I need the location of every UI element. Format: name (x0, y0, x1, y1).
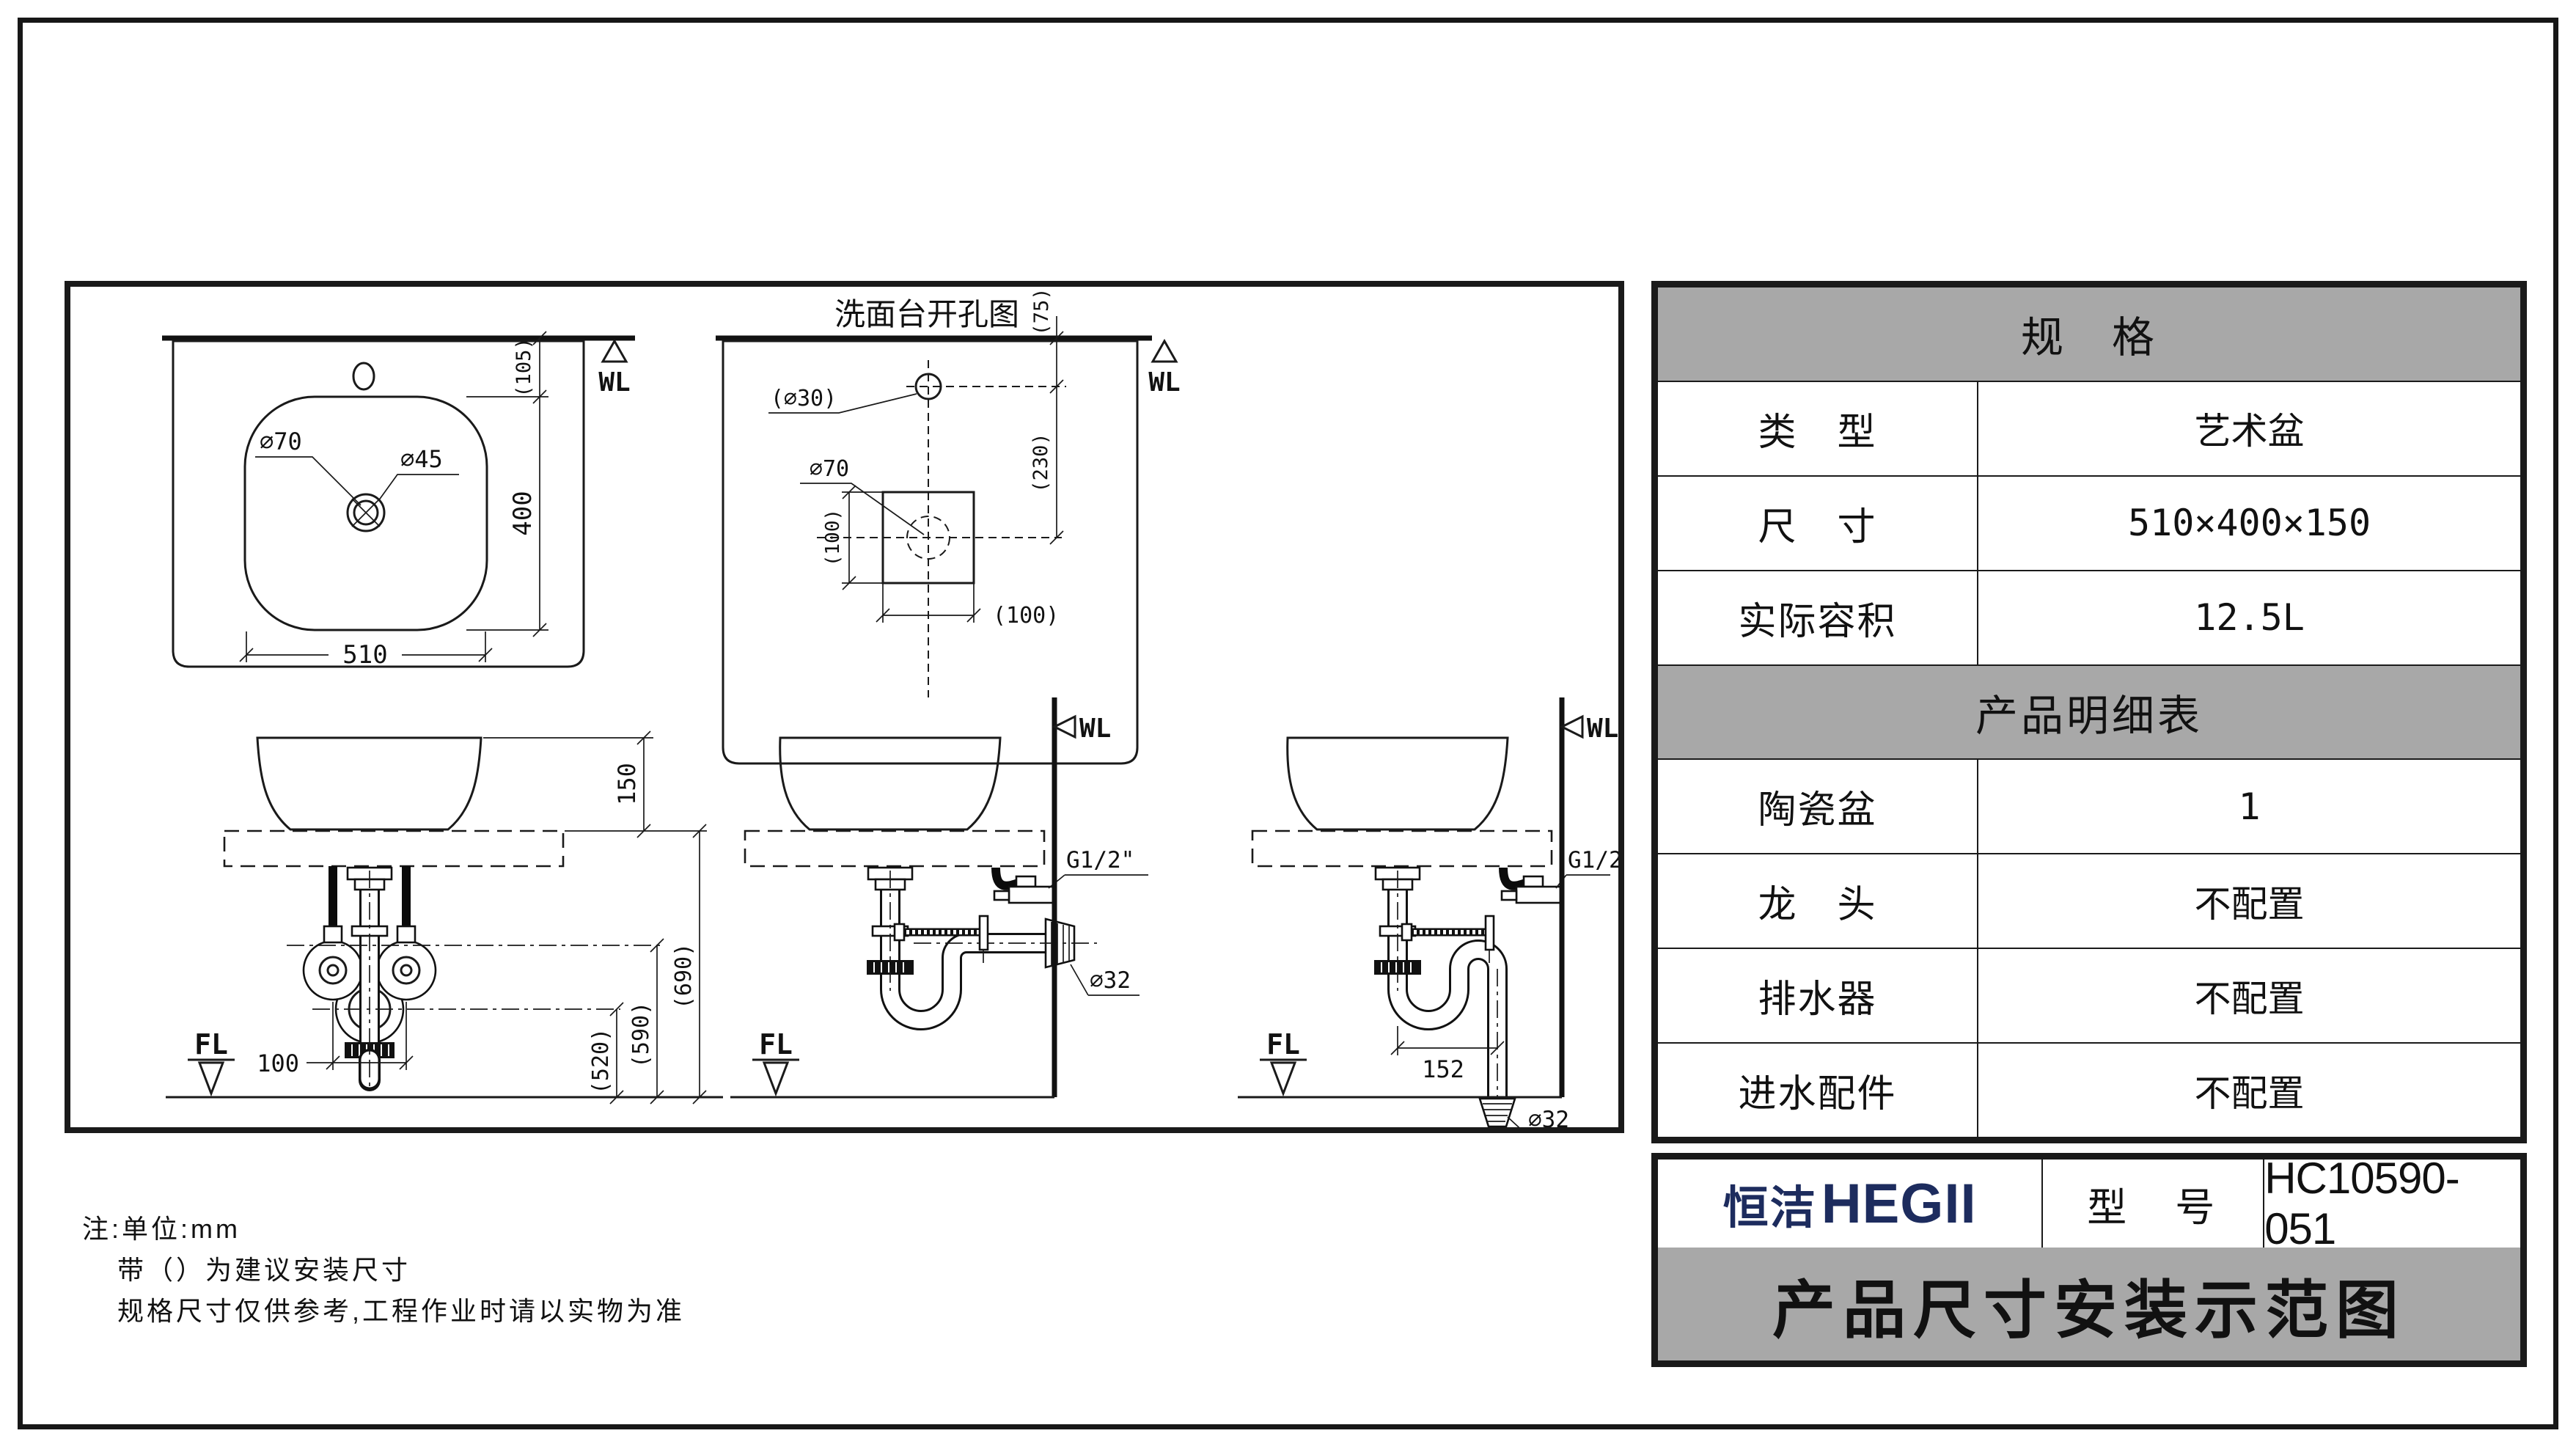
table-row: 类 型 艺术盆 (1658, 381, 2520, 475)
cutout-title: 洗面台开孔图 (834, 297, 1019, 331)
row-value: 不配置 (1978, 949, 2520, 1042)
brand-logo-cn: 恒洁 (1723, 1171, 1817, 1237)
brand-logo: 恒洁 HEGII (1658, 1160, 2043, 1248)
drawing-front-view: 100 150 (690) (590) (520) FL (166, 731, 723, 1104)
note-line-2: 带（）为建议安装尺寸 (117, 1250, 685, 1291)
spec-header-row: 规 格 (1658, 287, 2520, 381)
row-value: 510×400×150 (1978, 477, 2520, 570)
spec-table: 规 格 类 型 艺术盆 尺 寸 510×400×150 实际容积 12.5L 产… (1651, 281, 2527, 1143)
spec-section-title: 规 格 (1658, 287, 2520, 381)
dim-230: (230) (1030, 433, 1052, 492)
detail-section-title: 产品明细表 (1658, 666, 2520, 759)
row-label: 尺 寸 (1658, 477, 1978, 570)
dim-590: (590) (628, 1002, 654, 1068)
row-value: 12.5L (1978, 571, 2520, 664)
drawing-floor-drain: G1/2" 152 ∅32 WL FL (1238, 697, 1618, 1127)
row-value: 不配置 (1978, 854, 2520, 948)
g12-label: G1/2" (1568, 847, 1618, 873)
technical-drawings-svg: WL ∅70 ∅45 510 400 (70, 287, 1618, 1127)
installation-diagram-page: WL ∅70 ∅45 510 400 (0, 0, 2576, 1447)
dim-d30: (∅30) (771, 386, 837, 411)
brand-logo-en: HEGII (1821, 1172, 1977, 1236)
wl-label: WL (598, 367, 630, 398)
fl-label: FL (1266, 1028, 1300, 1060)
d32-label: ∅32 (1090, 967, 1131, 994)
model-value: HC10590-051 (2264, 1160, 2520, 1248)
table-row: 实际容积 12.5L (1658, 570, 2520, 664)
table-row: 陶瓷盆 1 (1658, 758, 2520, 853)
dim-100: 100 (257, 1049, 299, 1077)
drawing-top-view: WL ∅70 ∅45 510 400 (162, 331, 635, 670)
wl-label: WL (1587, 714, 1618, 744)
row-value: 1 (1978, 760, 2520, 853)
dim-150: 150 (613, 763, 641, 805)
dim-510: 510 (342, 640, 387, 670)
dim-520: (520) (588, 1028, 614, 1094)
dim-100v: (100) (822, 509, 844, 566)
note-line-1: 注:单位:mm (82, 1209, 685, 1250)
notes: 注:单位:mm 带（）为建议安装尺寸 规格尺寸仅供参考,工程作业时请以实物为准 (82, 1209, 685, 1332)
dim-75: (75) (1030, 287, 1053, 335)
row-label: 实际容积 (1658, 571, 1978, 664)
dim-400: 400 (508, 491, 537, 535)
model-label: 型 号 (2043, 1160, 2264, 1248)
g12-label: G1/2" (1066, 847, 1134, 873)
table-row: 进水配件 不配置 (1658, 1042, 2520, 1137)
dim-d70: ∅70 (260, 428, 302, 455)
row-value: 艺术盆 (1978, 382, 2520, 475)
table-row: 尺 寸 510×400×150 (1658, 475, 2520, 570)
dim-105: (105) (513, 337, 535, 397)
note-line-3: 规格尺寸仅供参考,工程作业时请以实物为准 (117, 1291, 685, 1332)
fl-label: FL (194, 1028, 228, 1060)
row-label: 龙 头 (1658, 854, 1978, 948)
row-label: 陶瓷盆 (1658, 760, 1978, 853)
table-row: 龙 头 不配置 (1658, 853, 2520, 948)
wl-label: WL (1079, 714, 1111, 744)
dim-152: 152 (1422, 1055, 1464, 1083)
row-value: 不配置 (1978, 1044, 2520, 1137)
table-row: 排水器 不配置 (1658, 948, 2520, 1042)
row-label: 排水器 (1658, 949, 1978, 1042)
dim-690: (690) (671, 943, 697, 1009)
detail-header-row: 产品明细表 (1658, 664, 2520, 759)
drawing-panel: WL ∅70 ∅45 510 400 (65, 281, 1624, 1133)
title-block-top-row: 恒洁 HEGII 型 号 HC10590-051 (1658, 1160, 2520, 1248)
row-label: 类 型 (1658, 382, 1978, 475)
diagram-title-banner: 产品尺寸安装示范图 (1658, 1248, 2520, 1360)
drawing-cutout: 洗面台开孔图 WL (∅30) ∅70 (100) (716, 287, 1181, 763)
row-label: 进水配件 (1658, 1044, 1978, 1137)
drawing-wall-drain: G1/2" ∅32 WL FL (730, 697, 1148, 1097)
dim-d45: ∅45 (400, 445, 443, 473)
dim-100h: (100) (993, 603, 1059, 629)
wl-label: WL (1148, 367, 1180, 398)
title-block: 恒洁 HEGII 型 号 HC10590-051 产品尺寸安装示范图 (1651, 1153, 2527, 1367)
d32-label: ∅32 (1528, 1107, 1569, 1127)
fl-label: FL (759, 1028, 793, 1060)
dim-d70: ∅70 (810, 456, 849, 482)
